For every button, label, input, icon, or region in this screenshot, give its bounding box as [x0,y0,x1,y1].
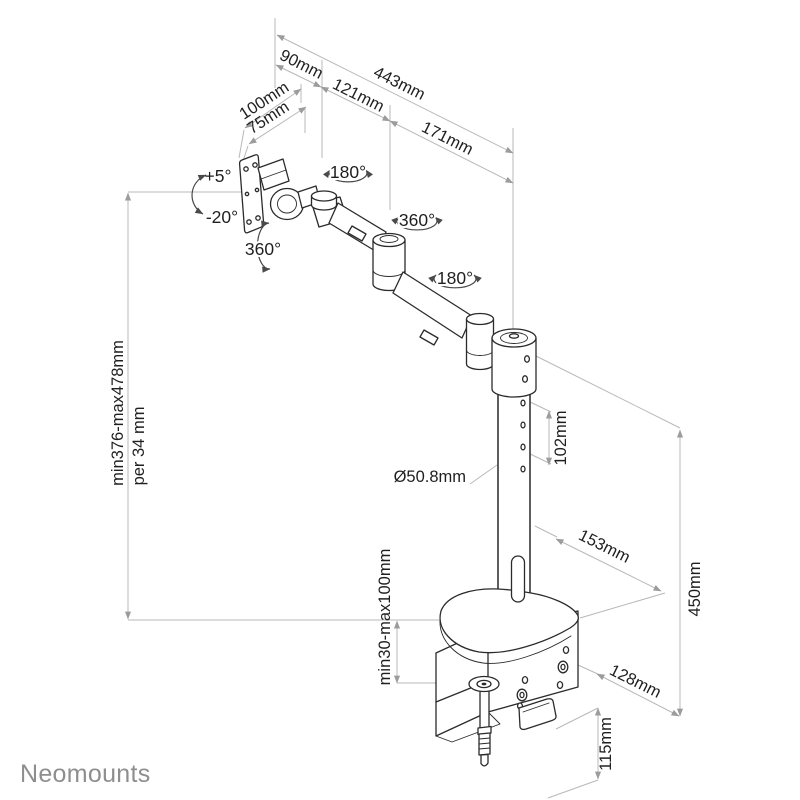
pole-diameter-label: Ø50.8mm [394,468,466,486]
base-depth-label: 153mm [576,526,633,567]
clamp-screw [469,677,499,766]
joint1-rotation-label: 180° [330,162,366,182]
dimension-labels: 443mm 90mm 121mm 171mm 100mm 75mm +5° -2… [109,46,704,771]
dimension-lines [128,35,680,779]
pole-top-cap [492,329,536,397]
tilt-down-label: -20° [206,207,238,227]
mount-arm-technical-drawing: 443mm 90mm 121mm 171mm 100mm 75mm +5° -2… [0,0,800,800]
pole-height-label: 450mm [686,561,704,616]
hole-spacing-label: 102mm [552,410,570,465]
vesa-swivel-label: 360° [245,239,281,259]
vesa-plate [240,155,264,233]
monitor-arm-drawing [240,155,579,766]
pole-cable-slot [512,556,525,602]
joint2-rotation-label: 180° [437,268,473,288]
clamp-range-label: min30-max100mm [376,549,394,686]
height-step-label: per 34 mm [130,407,148,486]
clamp-depth-label: 115mm [597,717,615,771]
tilt-joint [258,159,320,220]
dimension-extension-lines [128,18,680,798]
tilt-up-label: +5° [205,166,232,186]
arm-rotation-label: 360° [399,210,435,230]
base-width-label: 128mm [607,661,664,702]
dim-seg3-label: 171mm [419,118,476,159]
arm-end-cylinder [467,314,494,370]
diagram-canvas: 443mm 90mm 121mm 171mm 100mm 75mm +5° -2… [0,0,800,800]
clamp-foot-pad [519,699,556,730]
brand-logo: Neomounts [20,760,151,789]
height-range-label: min376-max478mm [109,340,127,486]
